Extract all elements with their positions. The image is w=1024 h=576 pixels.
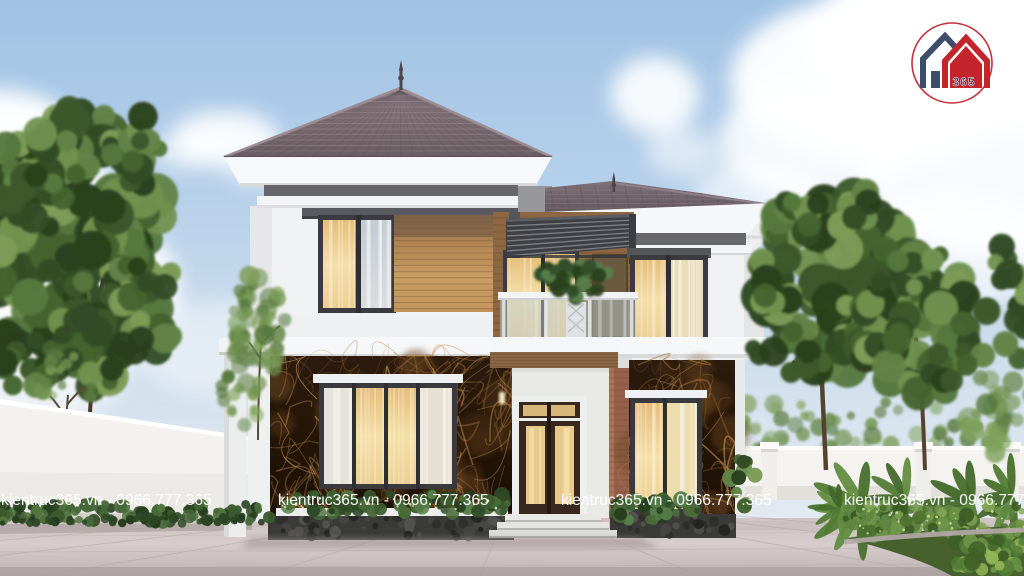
svg-text:kientruc365.vn - 0966.777.365: kientruc365.vn - 0966.777.365: [844, 492, 1024, 509]
svg-text:kientruc365.vn - 0966.777.365: kientruc365.vn - 0966.777.365: [278, 492, 489, 509]
svg-text:365: 365: [952, 75, 975, 89]
svg-text:kientruc365.vn - 0966.777.365: kientruc365.vn - 0966.777.365: [1, 492, 212, 509]
svg-text:kientruc365.vn - 0966.777.365: kientruc365.vn - 0966.777.365: [561, 492, 772, 509]
